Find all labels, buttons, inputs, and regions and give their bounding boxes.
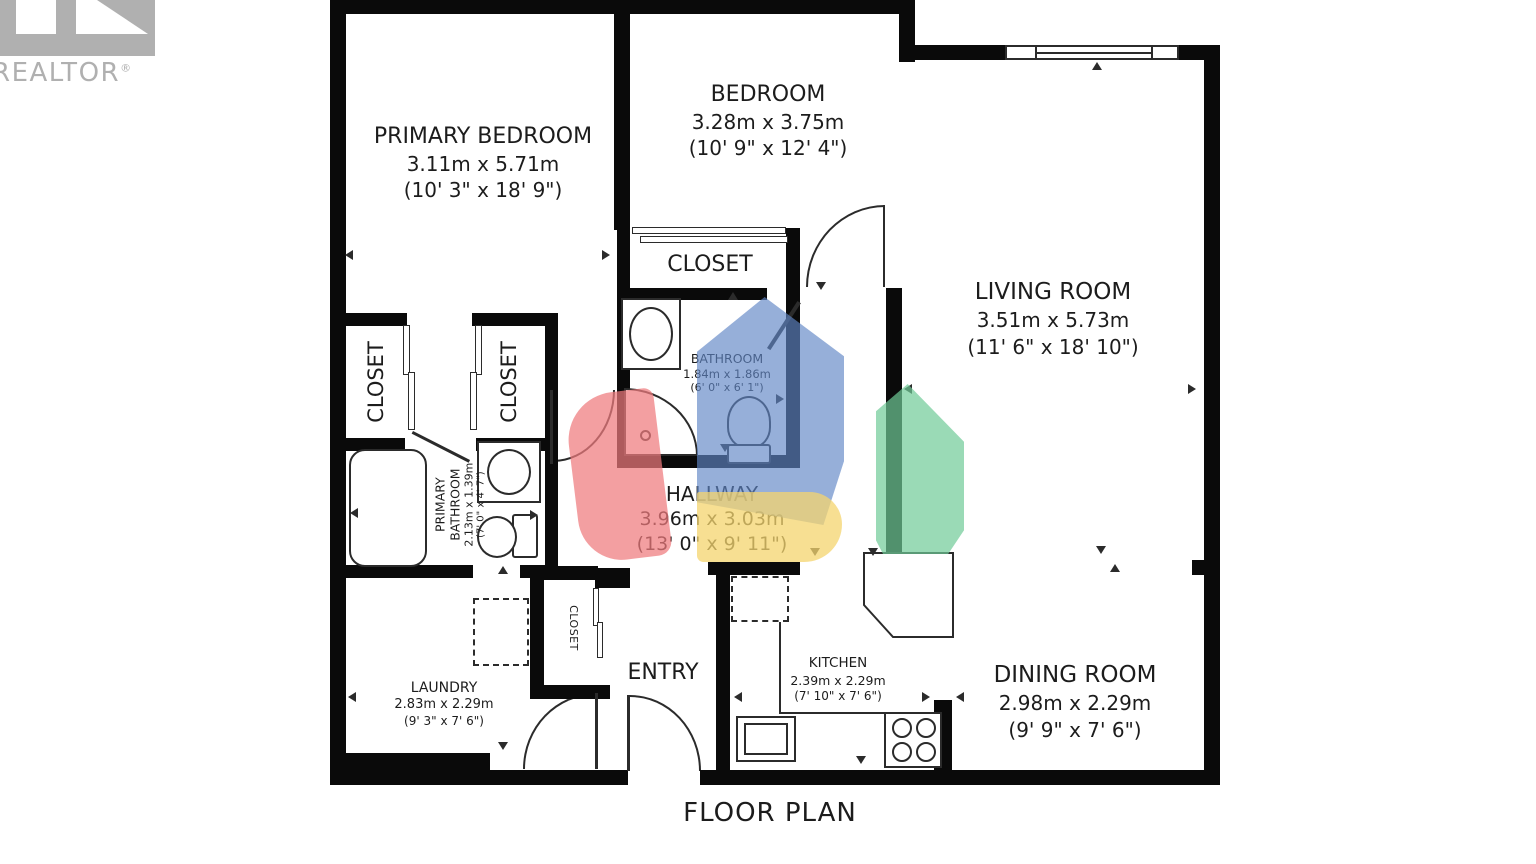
room-name: PRIMARY BATHROOM <box>432 440 462 570</box>
dimension-arrow <box>350 508 358 518</box>
closet-label: CLOSET <box>496 322 526 442</box>
kitchen-sink-basin <box>744 723 788 755</box>
wall <box>330 0 915 14</box>
room-dim-metric: 2.83m x 2.29m <box>364 697 524 714</box>
door-leaf <box>595 693 598 769</box>
room-label-primary-bathroom: PRIMARY BATHROOM 2.13m x 1.39m (7' 0" x … <box>395 460 525 550</box>
dimension-arrow <box>1092 62 1102 70</box>
dimension-arrow <box>922 692 930 702</box>
room-label-bedroom: BEDROOM 3.28m x 3.75m (10' 9" x 12' 4") <box>628 80 908 162</box>
room-dim-imperial: (9' 3" x 7' 6") <box>364 714 524 730</box>
dimension-arrow <box>348 692 356 702</box>
dimension-arrow <box>498 566 508 574</box>
brokerage-watermark <box>560 290 980 570</box>
dimension-arrow <box>498 742 508 750</box>
sliding-door <box>593 588 599 626</box>
fridge-outline <box>731 576 789 622</box>
watermark-green-shape <box>876 384 964 554</box>
wall <box>330 0 346 785</box>
sliding-door <box>403 325 410 375</box>
closet-label: CLOSET <box>363 322 393 442</box>
door-leaf <box>627 695 630 771</box>
room-dim-imperial: (9' 9" x 7' 6") <box>945 717 1205 743</box>
wall <box>1192 560 1204 575</box>
realtor-block-icon <box>0 0 155 56</box>
watermark-red-shape <box>563 387 673 565</box>
room-label-primary-bedroom: PRIMARY BEDROOM 3.11m x 5.71m (10' 3" x … <box>333 122 633 204</box>
dimension-arrow <box>1096 546 1106 554</box>
floor-plan: REALTOR® <box>0 0 1536 864</box>
door-arc <box>523 693 596 769</box>
dimension-arrow <box>345 250 353 260</box>
room-name: PRIMARY BEDROOM <box>333 122 633 151</box>
wall <box>899 45 1009 60</box>
stove-burner <box>892 718 912 738</box>
room-dim-imperial: (10' 3" x 18' 9") <box>333 177 633 203</box>
room-name: DINING ROOM <box>945 660 1205 690</box>
room-dim-metric: 2.13m x 1.39m <box>462 440 475 570</box>
dimension-arrow <box>1188 384 1196 394</box>
room-label-kitchen: KITCHEN 2.39m x 2.29m (7' 10" x 7' 6") <box>758 655 918 704</box>
sliding-door <box>640 236 788 243</box>
door-arc <box>630 695 701 771</box>
room-name: ENTRY <box>613 658 713 687</box>
room-dim-imperial: (7' 10" x 7' 6") <box>758 689 918 705</box>
dimension-arrow <box>530 510 538 520</box>
door-arc <box>806 205 885 287</box>
wall <box>700 770 1220 785</box>
stove-burner <box>916 718 936 738</box>
wall <box>595 568 630 588</box>
wall <box>1204 45 1220 785</box>
dimension-arrow <box>856 756 866 764</box>
room-label-dining-room: DINING ROOM 2.98m x 2.29m (9' 9" x 7' 6"… <box>945 660 1205 743</box>
realtor-logo-text: REALTOR® <box>0 58 133 88</box>
room-dim-imperial: (7' 0" x 4' 7") <box>476 440 488 570</box>
wall <box>330 770 628 785</box>
wall <box>530 566 544 699</box>
sliding-door <box>470 372 477 430</box>
wall <box>345 753 490 771</box>
sliding-door <box>597 622 603 658</box>
wall <box>532 685 610 699</box>
stove-burner <box>892 742 912 762</box>
room-dim-metric: 3.11m x 5.71m <box>333 151 633 177</box>
sliding-door <box>632 227 786 234</box>
dimension-arrow <box>602 250 610 260</box>
room-dim-imperial: (10' 9" x 12' 4") <box>628 135 908 161</box>
sliding-door <box>408 372 415 430</box>
room-dim-metric: 2.39m x 2.29m <box>758 673 918 689</box>
room-name: BEDROOM <box>628 80 908 109</box>
watermark-yellow-shape <box>697 492 842 562</box>
closet-label: CLOSET <box>558 578 580 678</box>
dimension-arrow <box>1110 564 1120 572</box>
room-label-entry: ENTRY <box>613 658 713 687</box>
dimension-arrow <box>734 692 742 702</box>
door-leaf <box>550 390 553 464</box>
window <box>1005 45 1179 60</box>
plan-title: FLOOR PLAN <box>620 798 920 828</box>
room-dim-metric: 2.98m x 2.29m <box>945 690 1205 716</box>
counter-edge <box>779 712 935 714</box>
dimension-arrow <box>816 282 826 290</box>
realtor-logo: REALTOR® <box>0 0 220 100</box>
washer-dryer-outline <box>473 598 529 666</box>
sliding-door <box>475 325 482 375</box>
closet-label: CLOSET <box>630 250 790 279</box>
room-name: LAUNDRY <box>364 679 524 697</box>
room-label-laundry: LAUNDRY 2.83m x 2.29m (9' 3" x 7' 6") <box>364 679 524 730</box>
wall <box>716 562 730 770</box>
stove-burner <box>916 742 936 762</box>
room-name: KITCHEN <box>758 655 918 673</box>
door-leaf <box>883 205 885 287</box>
room-dim-metric: 3.28m x 3.75m <box>628 109 908 135</box>
watermark-blue-shape <box>697 297 844 525</box>
